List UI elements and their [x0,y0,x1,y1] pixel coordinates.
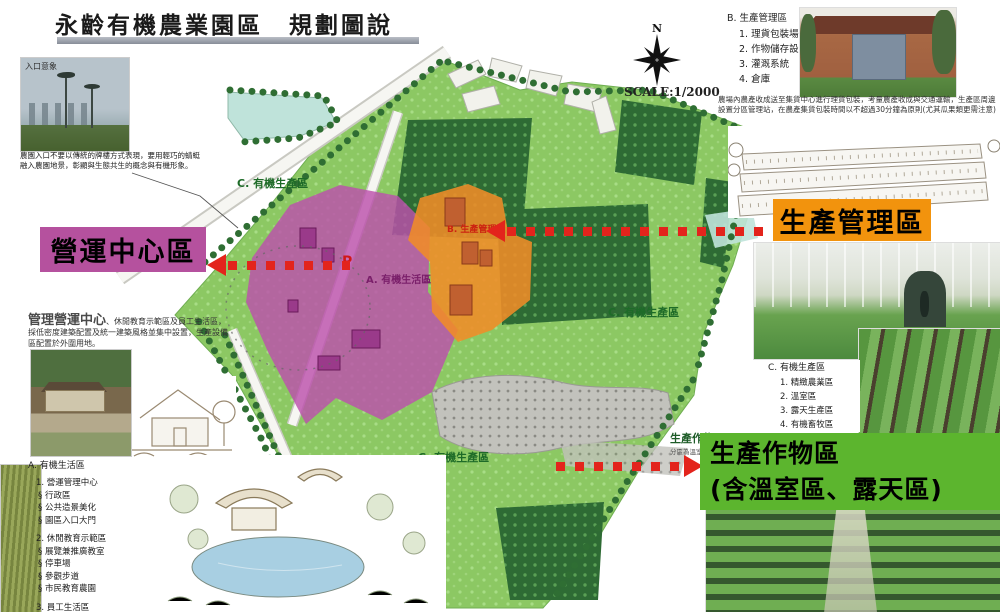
compass-rose-icon [629,32,685,88]
section-c-item: 4. 有機畜牧區 [780,418,860,432]
arrow-dashes-production-mgmt [507,227,767,236]
arrow-head-production-mgmt [486,220,505,242]
entrance-photo: 入口意象 [20,57,130,152]
section-a-group-title: 1. 營運管理中心 [36,477,166,490]
map-zone-c-label-2: C. 有機生產區 [608,305,679,319]
operation-center-label: 營運中心區 [40,227,206,272]
map-zone-c-label-1: C. 有機生產區 [237,176,308,190]
section-a-item: § 參觀步道 [38,571,166,584]
pavilion-pond-sketch [158,455,446,612]
section-a-item: § 停車場 [38,558,166,571]
section-c-item: 3. 露天生產區 [780,404,860,418]
city-skyline-silhouette [29,103,89,125]
management-note: 管理營運中心、休閒教育示範區及員工生活區，採低密度建築配置及統一建築風格並集中設… [28,315,228,349]
barn-door [852,34,906,80]
section-a-heading: A. 有機生活區 [28,458,166,471]
section-a-item: § 園區入口大門 [38,515,166,528]
entrance-note: 農園入口不要以傳統的牌樓方式表現，要用輕巧的蜻蜓融入農園地景，彰顯與生態共生的概… [20,151,200,171]
arrow-dashes-production-crops [556,462,684,471]
section-a-list: A. 有機生活區 1. 營運管理中心 § 行政區 § 公共造景美化 § 園區入口… [28,458,166,612]
section-a-item: § 展覽兼推廣教室 [38,546,166,559]
section-a-group-title: 2. 休閒教育示範區 [36,533,166,546]
bird-sculpture [84,84,100,89]
production-mgmt-label: 生產管理區 [773,199,931,241]
building-wall [45,390,105,412]
entrance-photo-caption: 入口意象 [25,61,57,72]
orchard-block-top-right [615,100,702,185]
orchard-block-bottom [496,502,604,600]
section-c-item: 2. 溫室區 [780,390,860,404]
sculpture-pole [65,76,67,128]
farmhouse-sketch [128,376,236,464]
plan-canvas: C. 有機生產區 C. 有機生產區 C. 有機生產區 A. 有機生活區 B. 生… [0,0,1000,612]
production-crops-label-line1: 生產作物區 [710,436,840,472]
section-c-list: C. 有機生產區 1. 精緻農業區 2. 溫室區 3. 露天生產區 4. 有機畜… [768,360,860,432]
section-a-item: § 市民教育農園 [38,583,166,596]
page-title: 永齡有機農業園區 規劃圖說 [55,6,393,40]
tree [800,14,816,72]
farmer-figure [920,291,929,317]
greenhouse-ribs [754,243,1000,307]
production-crops-label: 生產作物區 (含溫室區、露天區) [700,433,1000,510]
sculpture-pole [91,88,93,128]
scale-text: SCALE:1/2000 [624,85,720,99]
section-b-note: 農場內農產收成送至集貨中心進行理貨包裝，考量農產收成與交通運輸，生產區周邊設置分… [718,95,1000,115]
section-c-item: 1. 精緻農業區 [780,376,860,390]
section-a-item: § 行政區 [38,490,166,503]
farm-buildings-photo [30,349,132,457]
map-zone-a-label: A. 有機生活區 [366,273,431,286]
management-note-lead: 管理營運中心 [28,313,106,328]
arrow-head-operation-center [207,254,226,276]
section-a-item: § 公共造景美化 [38,502,166,515]
barn-photo [799,7,957,98]
section-a-group-title: 3. 員工生活區 [36,602,166,612]
arrow-dashes-operation-center [228,261,350,270]
tree [932,10,956,74]
section-c-heading: C. 有機生產區 [768,360,860,373]
production-crops-label-line2: (含溫室區、露天區) [710,472,943,508]
title-underline-bar [57,37,419,44]
bird-sculpture [57,72,75,78]
